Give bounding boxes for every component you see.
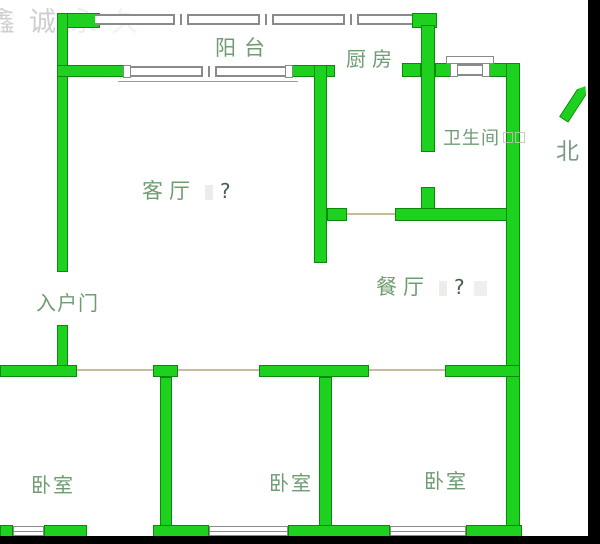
room-label-kitchen: 厨房	[346, 49, 398, 69]
window-sill-line	[118, 81, 298, 82]
room-label-living-text: 客厅	[142, 179, 196, 203]
wall-segment	[153, 365, 178, 377]
room-label-dining: 餐厅?	[376, 277, 487, 298]
photo-crop-edge-right	[588, 0, 600, 544]
room-label-bathroom: 卫生间	[443, 130, 525, 148]
room-label-balcony: 阳台	[215, 38, 273, 59]
window-end-cap	[482, 63, 490, 77]
wall-segment	[160, 377, 172, 537]
erased-char-box	[205, 185, 213, 200]
wall-segment	[402, 63, 421, 77]
room-label-bathroom-text: 卫生间	[443, 128, 500, 149]
wall-segment	[290, 65, 335, 77]
erased-char-box	[439, 281, 447, 296]
room-label-bedroom-1: 卧室	[31, 475, 75, 495]
north-label: 北	[556, 141, 579, 164]
room-label-bedroom-2: 卧室	[269, 473, 313, 493]
door-opening-line	[347, 213, 395, 215]
window-end-cap	[450, 63, 458, 77]
room-label-bedroom-3: 卧室	[424, 471, 468, 491]
door-opening-line	[178, 369, 259, 371]
room-label-dining-text: 餐厅	[376, 275, 430, 299]
wall-segment	[421, 25, 435, 152]
window-mullion	[258, 14, 274, 25]
erased-char-box	[503, 132, 513, 143]
entrance-door-label: 入户门	[36, 293, 99, 313]
window-lintel	[446, 56, 494, 64]
window-mullion	[343, 14, 359, 25]
window-end-cap	[123, 65, 131, 78]
wall-segment	[319, 377, 332, 537]
window-end-cap	[285, 65, 293, 78]
erased-char-box	[515, 132, 525, 143]
erased-char-box	[474, 281, 487, 296]
wall-segment	[0, 365, 77, 377]
door-opening-line	[369, 369, 445, 371]
watermark-char: 鑫	[0, 7, 29, 38]
wall-segment	[259, 365, 369, 377]
north-arrow-icon	[559, 83, 590, 123]
room-label-living: 客厅?	[142, 181, 231, 202]
floor-plan-canvas: 鑫诚永久 阳台 厨房 卫生间 北 客厅? 餐厅? 入户门 卧室 卧室 卧室	[0, 0, 600, 544]
wall-segment	[314, 65, 327, 263]
door-opening-line	[77, 369, 153, 371]
question-mark: ?	[220, 181, 231, 201]
wall-segment	[57, 65, 125, 77]
wall-segment	[445, 365, 520, 377]
photo-crop-edge-bottom	[0, 536, 600, 544]
window-symbol	[13, 526, 44, 536]
window-symbol	[95, 14, 412, 25]
wall-segment	[327, 208, 347, 221]
window-mullion	[201, 66, 217, 77]
wall-segment	[57, 13, 68, 272]
question-mark: ?	[454, 277, 465, 297]
wall-segment	[395, 208, 510, 221]
window-mullion	[173, 14, 189, 25]
window-symbol	[390, 526, 466, 536]
window-symbol	[209, 526, 288, 536]
